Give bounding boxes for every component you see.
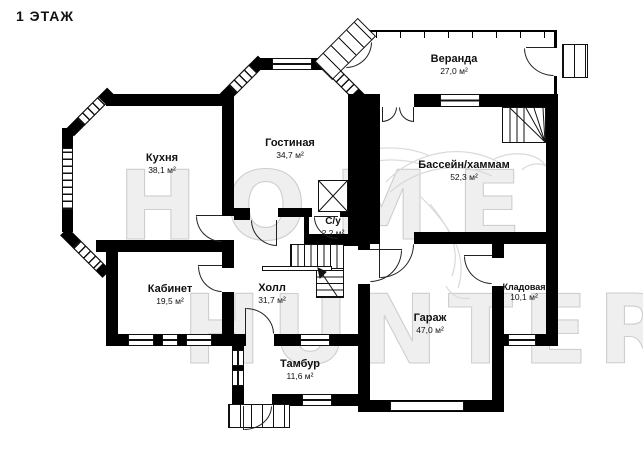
room-label-hall: Холл 31,7 м² xyxy=(258,282,286,305)
room-name: Веранда xyxy=(431,53,478,66)
wall xyxy=(234,208,250,220)
wall xyxy=(358,284,370,412)
room-label-pool: Бассейн/хаммам 52,3 м² xyxy=(418,159,509,182)
window xyxy=(508,334,536,346)
wall xyxy=(330,334,358,346)
room-area: 38,1 м² xyxy=(146,165,178,175)
wall xyxy=(546,94,558,346)
door-leaf xyxy=(196,215,222,216)
staircase-hall-rail xyxy=(262,266,332,271)
room-name: Гостиная xyxy=(265,137,315,150)
room-area: 31,7 м² xyxy=(258,295,286,305)
wall xyxy=(96,240,234,252)
wall xyxy=(154,334,162,346)
room-area: 34,7 м² xyxy=(265,150,315,160)
wall xyxy=(274,334,300,346)
room-area: 52,3 м² xyxy=(418,172,509,182)
room-area: 10,1 м² xyxy=(502,292,545,302)
wall xyxy=(554,30,557,48)
window xyxy=(228,65,258,95)
window xyxy=(302,394,332,406)
wall xyxy=(106,94,226,106)
door-leaf xyxy=(379,244,380,278)
floor-plan: 1 ЭТАЖ HOME HUNTER xyxy=(0,0,643,455)
door-leaf xyxy=(464,255,492,256)
room-name: С/у xyxy=(322,216,345,228)
window xyxy=(232,370,244,386)
room-area: 27,0 м² xyxy=(431,66,478,76)
room-name: Бассейн/хаммам xyxy=(418,159,509,172)
wall xyxy=(178,334,186,346)
window xyxy=(186,334,212,346)
room-label-veranda: Веранда 27,0 м² xyxy=(431,53,478,76)
page-title: 1 ЭТАЖ xyxy=(16,8,74,24)
wall xyxy=(414,232,546,244)
door-arc xyxy=(346,42,372,68)
room-area: 19,5 м² xyxy=(148,296,193,306)
staircase-hall-lower xyxy=(316,268,344,298)
window xyxy=(128,334,154,346)
wall xyxy=(106,252,118,346)
door-arc xyxy=(399,107,414,122)
window xyxy=(62,148,73,210)
garage-gate xyxy=(390,401,464,411)
wall xyxy=(222,94,234,216)
wall xyxy=(106,334,128,346)
room-name: Кабинет xyxy=(148,283,193,296)
wall xyxy=(332,394,358,406)
wall xyxy=(414,94,440,107)
room-area: 2,2 м² xyxy=(322,228,345,238)
room-label-vestibule: Тамбур 11,6 м² xyxy=(280,358,320,381)
wall xyxy=(554,76,557,96)
wall xyxy=(212,334,246,346)
window xyxy=(440,94,480,107)
room-name: Тамбур xyxy=(280,358,320,371)
room-name: Кухня xyxy=(146,152,178,165)
door-leaf xyxy=(245,308,246,334)
door-arc xyxy=(524,48,554,76)
room-area: 11,6 м² xyxy=(280,371,320,381)
room-label-kitchen: Кухня 38,1 м² xyxy=(146,152,178,175)
wall xyxy=(492,244,504,258)
room-label-storage: Кладовая 10,1 м² xyxy=(502,282,545,303)
door-leaf xyxy=(526,47,554,48)
wall xyxy=(362,94,380,244)
room-name: Холл xyxy=(258,282,286,295)
door-leaf xyxy=(276,220,277,246)
room-name: Гараж xyxy=(414,312,447,325)
door-arc xyxy=(380,244,414,278)
window xyxy=(162,334,178,346)
wall xyxy=(348,94,362,240)
door-leaf xyxy=(198,265,222,266)
room-label-living: Гостиная 34,7 м² xyxy=(265,137,315,160)
steps-veranda-right xyxy=(562,44,588,78)
door-leaf xyxy=(382,107,383,122)
window xyxy=(272,58,312,70)
room-label-office: Кабинет 19,5 м² xyxy=(148,283,193,306)
door-leaf xyxy=(413,107,414,122)
staircase-pool-icon xyxy=(503,108,546,143)
window xyxy=(76,96,106,126)
window xyxy=(232,350,244,366)
window xyxy=(300,334,330,346)
door-arc xyxy=(382,107,397,122)
room-area: 47,0 м² xyxy=(414,325,447,335)
room-label-wc: С/у 2,2 м² xyxy=(322,216,345,238)
room-label-garage: Гараж 47,0 м² xyxy=(414,312,447,335)
door-leaf xyxy=(243,406,244,430)
wall xyxy=(304,216,309,234)
veranda-railing xyxy=(352,30,556,38)
room-name: Кладовая xyxy=(502,282,545,292)
